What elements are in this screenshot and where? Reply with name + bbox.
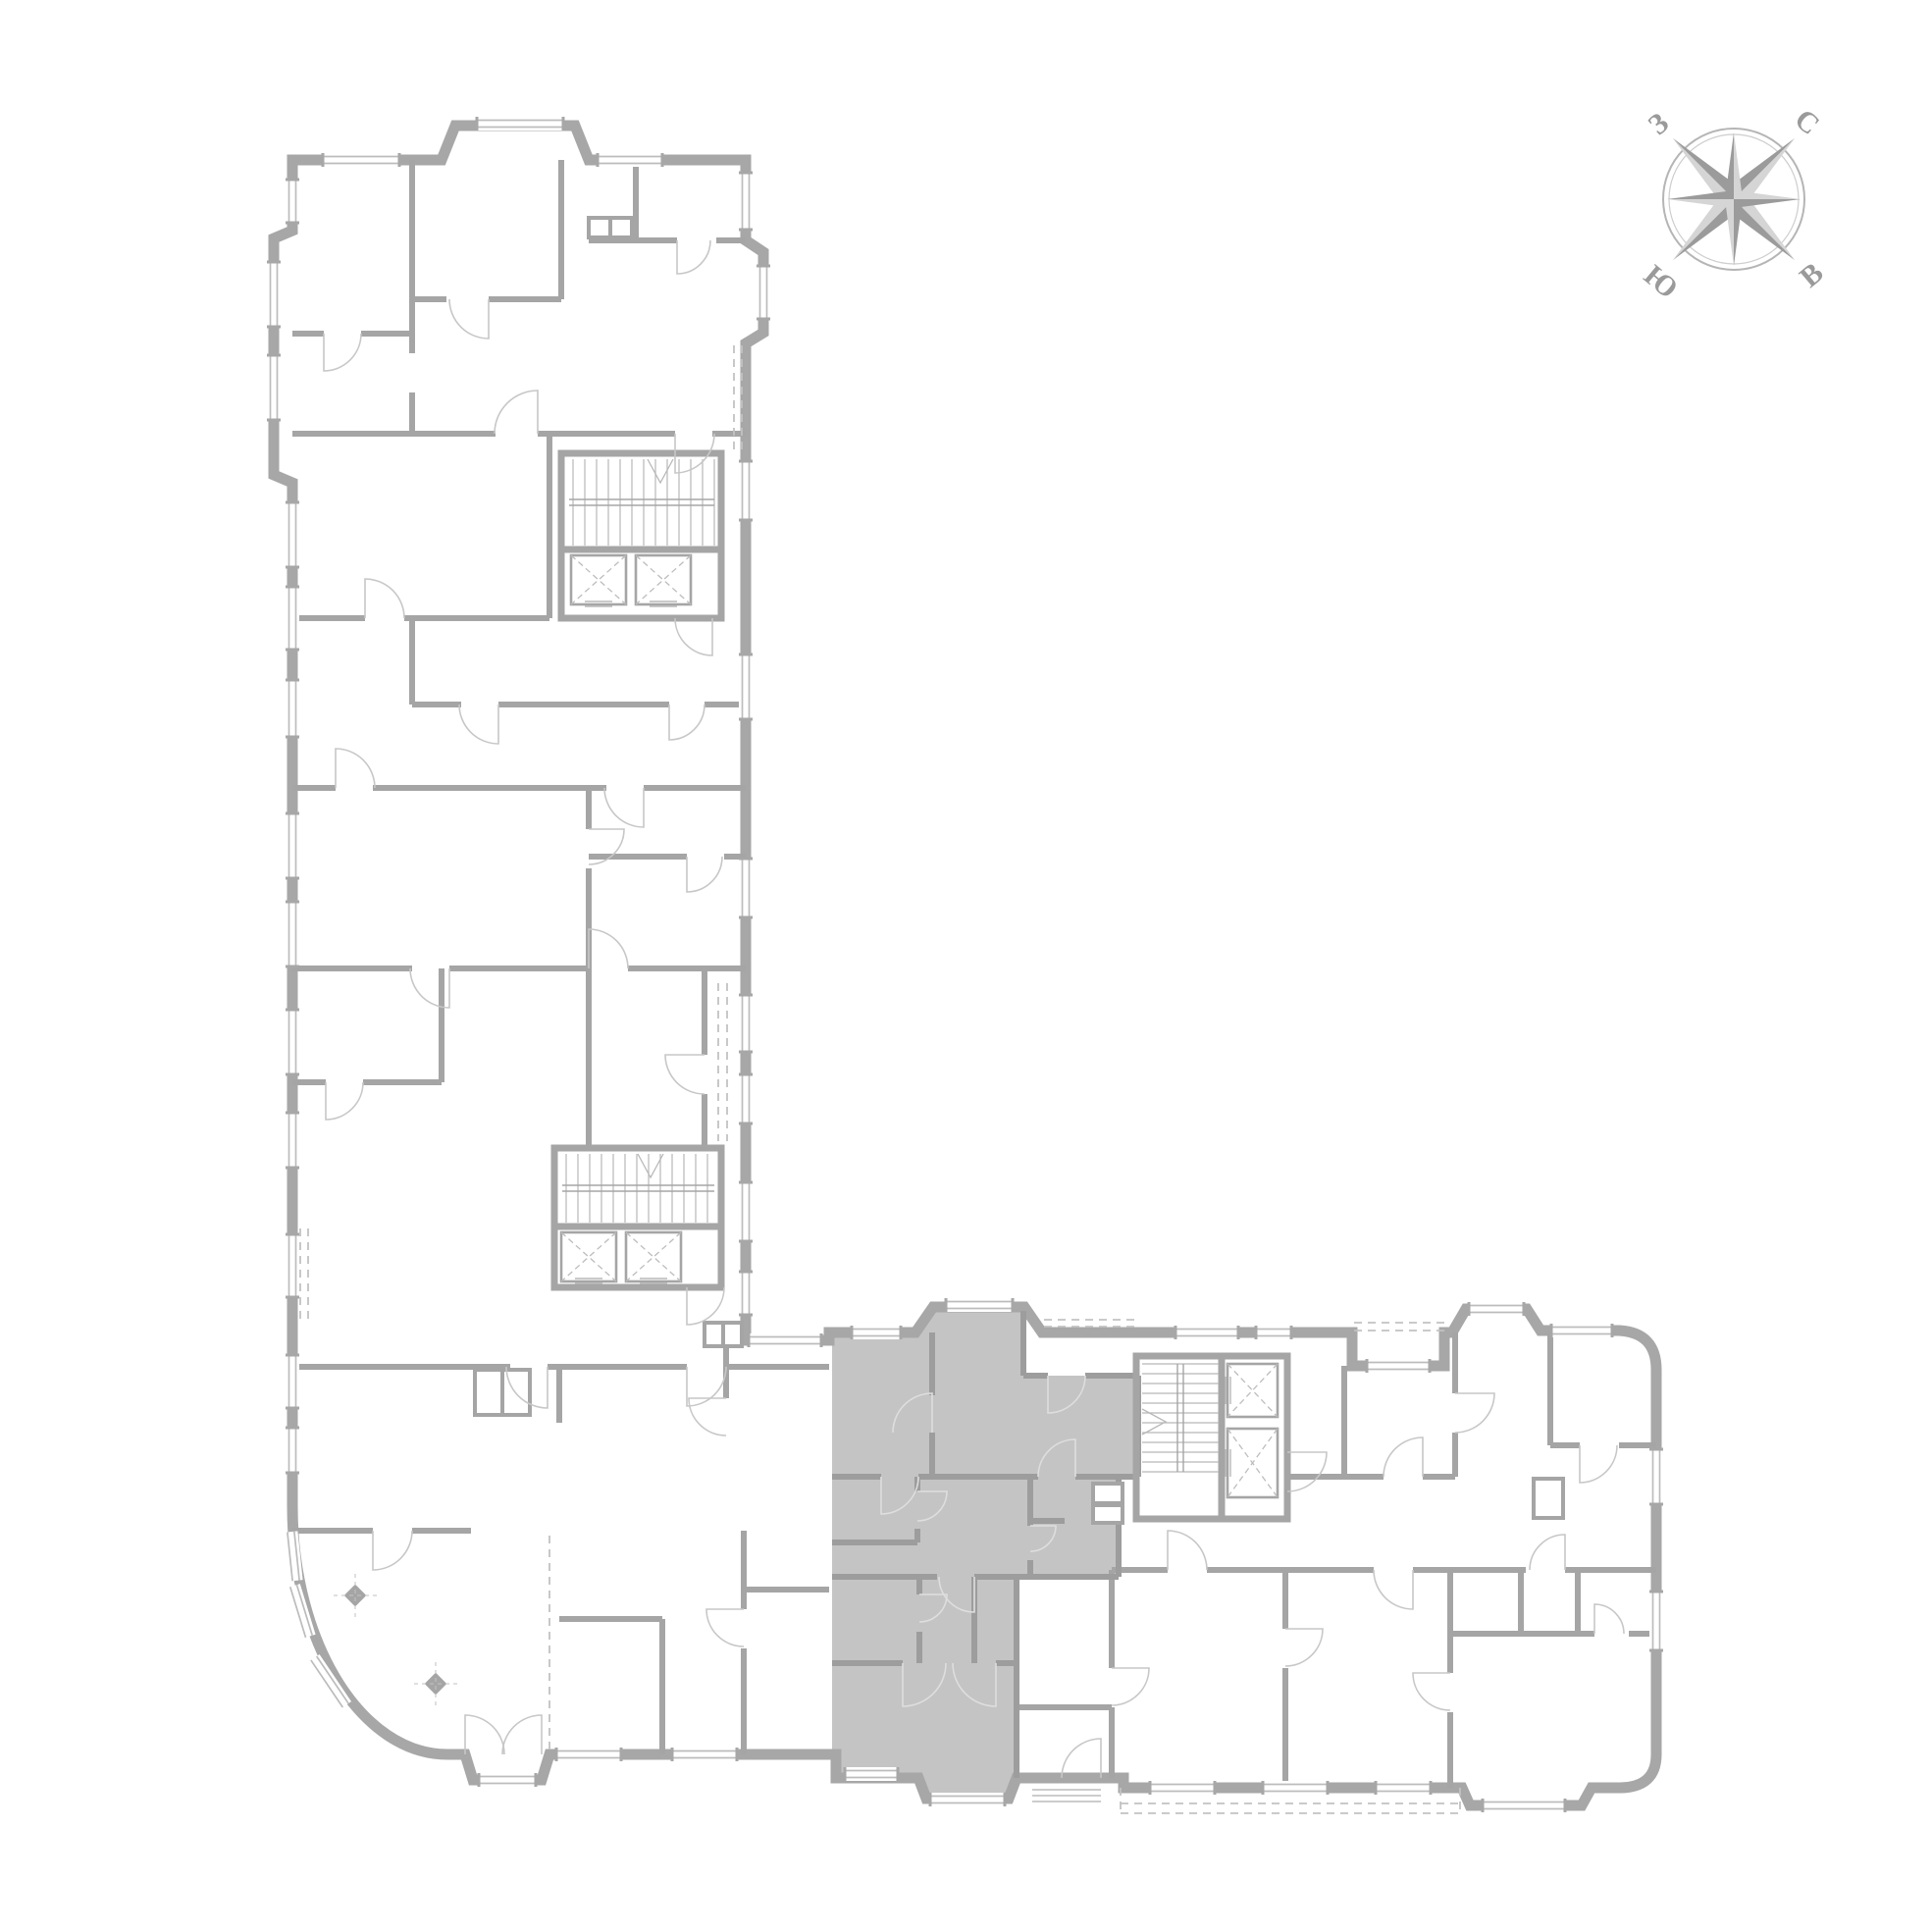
window-gap	[739, 1272, 753, 1315]
window-curved	[284, 1531, 302, 1581]
door-arc	[687, 1287, 724, 1325]
window	[286, 1428, 299, 1473]
window	[1263, 1781, 1328, 1795]
window-gap	[286, 813, 299, 878]
window-gap	[286, 1010, 299, 1074]
door-arc	[665, 1055, 705, 1094]
window	[757, 266, 770, 319]
window-gap	[286, 180, 299, 223]
window	[286, 502, 299, 567]
compass-label-east: В	[1794, 256, 1830, 293]
window	[267, 262, 281, 327]
window-gap	[852, 1326, 901, 1339]
window-gap	[845, 1767, 898, 1781]
window	[286, 587, 299, 650]
window	[739, 859, 753, 917]
window	[286, 813, 299, 878]
window	[323, 153, 399, 167]
window	[1483, 1799, 1565, 1812]
floor-plan: С В Ю З	[0, 0, 1932, 1932]
window-gap	[1367, 1359, 1430, 1373]
window-gap	[672, 1748, 737, 1761]
window	[267, 355, 281, 420]
elevator-icon	[561, 1232, 616, 1283]
window-gap	[1469, 1302, 1524, 1316]
window-gap	[1551, 1324, 1612, 1337]
door-arc	[675, 618, 712, 655]
window-gap	[739, 654, 753, 719]
compass-needle	[1667, 199, 1734, 208]
door-arc	[1285, 1629, 1323, 1666]
window	[739, 461, 753, 520]
window	[1175, 1326, 1238, 1339]
window	[286, 1010, 299, 1074]
window-gap	[267, 262, 281, 327]
window-gap	[286, 1113, 299, 1168]
window-gap	[1483, 1799, 1565, 1812]
compass-needle	[1667, 190, 1734, 199]
window	[749, 1333, 821, 1347]
window	[946, 1298, 1013, 1312]
window-gap	[286, 1355, 299, 1408]
window-gap	[477, 117, 563, 131]
door-arc	[1580, 1445, 1617, 1483]
window	[477, 117, 563, 131]
window-gap	[739, 1074, 753, 1123]
column-icon	[414, 1662, 457, 1705]
door-arc	[706, 1609, 744, 1646]
door-arc	[449, 299, 489, 339]
door-arc	[365, 579, 404, 618]
stairs-icon	[566, 1154, 707, 1223]
door-arc	[495, 391, 538, 434]
window-gap	[930, 1793, 1005, 1806]
window	[845, 1767, 898, 1781]
compass-label-west: З	[1643, 107, 1675, 142]
highlighted-unit-area[interactable]	[832, 1311, 1138, 1799]
closet	[1534, 1479, 1563, 1518]
vent-shaft	[705, 1323, 742, 1346]
elevator-icon	[571, 555, 626, 606]
window-gap	[284, 1531, 302, 1581]
window	[1150, 1781, 1215, 1795]
compass-label-south: Ю	[1638, 259, 1684, 305]
window-gap	[946, 1298, 1013, 1312]
window	[672, 1748, 737, 1761]
door-arc	[669, 705, 705, 740]
vent-shaft	[475, 1370, 530, 1415]
window-gap	[286, 902, 299, 966]
window	[739, 1272, 753, 1315]
window	[1376, 1781, 1431, 1795]
window	[739, 173, 753, 230]
vent-shaft	[1093, 1484, 1123, 1523]
window	[1649, 1449, 1663, 1504]
compass-needle	[1734, 190, 1801, 199]
window-gap	[556, 1748, 621, 1761]
vent-shaft	[589, 218, 632, 237]
window	[286, 902, 299, 966]
door-arc	[1413, 1673, 1450, 1710]
door-arc	[687, 857, 722, 892]
door-arc	[465, 1715, 504, 1754]
stair-elevator-core-lower	[1136, 1356, 1287, 1519]
window	[739, 1074, 753, 1123]
window	[1469, 1302, 1524, 1316]
door-arc	[459, 705, 498, 744]
stair-elevator-core-middle	[554, 1148, 721, 1287]
window-gap	[739, 461, 753, 520]
door-arc	[1287, 1452, 1327, 1491]
window-gap	[1256, 1326, 1291, 1339]
window	[852, 1326, 901, 1339]
window-gap	[739, 173, 753, 230]
highlighted-unit[interactable]	[832, 1311, 1138, 1799]
stairs-icon	[1142, 1364, 1219, 1472]
stair-elevator-core-upper	[561, 453, 721, 618]
window-gap	[749, 1333, 821, 1347]
compass-needle	[1734, 199, 1801, 208]
window	[286, 680, 299, 737]
window-gap	[323, 153, 399, 167]
window-gap	[286, 1428, 299, 1473]
door-arc	[1530, 1535, 1565, 1570]
door-arc	[336, 749, 375, 788]
door-arc	[502, 1715, 542, 1754]
stair-break-mark	[648, 459, 673, 483]
window	[739, 654, 753, 719]
elevator-icon	[626, 1232, 681, 1283]
entrance-steps	[1032, 1790, 1101, 1801]
window-gap	[1649, 1449, 1663, 1504]
stair-break-mark	[638, 1154, 663, 1177]
window-gap	[757, 266, 770, 319]
door-arc	[687, 1367, 726, 1406]
window	[930, 1793, 1005, 1806]
window-gap	[479, 1773, 536, 1787]
door-arc	[604, 788, 644, 827]
window	[479, 1773, 536, 1787]
column-icon	[334, 1574, 377, 1617]
window-gap	[286, 502, 299, 567]
window-gap	[1376, 1781, 1431, 1795]
window-gap	[1263, 1781, 1328, 1795]
door-arc	[324, 334, 361, 371]
window-gap	[286, 680, 299, 737]
window-gap	[598, 153, 662, 167]
window-gap	[1150, 1781, 1215, 1795]
window	[739, 995, 753, 1052]
door-arc	[677, 240, 710, 274]
floor-plan-canvas: С В Ю З	[0, 0, 1932, 1932]
window-gap	[267, 355, 281, 420]
window	[556, 1748, 621, 1761]
door-arc	[1062, 1739, 1101, 1778]
window	[1649, 1592, 1663, 1650]
elevator-icon	[1226, 1429, 1278, 1497]
elevator-icon	[1226, 1364, 1278, 1417]
window-gap	[286, 1234, 299, 1297]
window	[286, 180, 299, 223]
door-arc	[589, 929, 628, 968]
stairs-icon	[573, 459, 714, 546]
door-arc	[1594, 1604, 1624, 1634]
window	[1367, 1359, 1430, 1373]
window	[598, 153, 662, 167]
window	[286, 1355, 299, 1408]
window	[286, 1234, 299, 1297]
window	[286, 1113, 299, 1168]
window-gap	[286, 587, 299, 650]
elevator-icon	[636, 555, 691, 606]
window-gap	[739, 1182, 753, 1241]
door-arc	[1384, 1437, 1423, 1477]
window-gap	[739, 995, 753, 1052]
door-arc	[1455, 1393, 1494, 1433]
door-arc	[1112, 1668, 1149, 1705]
door-arc	[1168, 1531, 1207, 1570]
window-gap	[1175, 1326, 1238, 1339]
door-arc	[689, 1398, 726, 1436]
window	[739, 1182, 753, 1241]
window	[1551, 1324, 1612, 1337]
window	[1256, 1326, 1291, 1339]
compass-rose: С В Ю З	[1638, 103, 1829, 305]
door-arc	[1374, 1570, 1413, 1609]
window-gap	[1649, 1592, 1663, 1650]
door-arc	[326, 1082, 363, 1120]
window-gap	[739, 859, 753, 917]
door-arc	[373, 1531, 412, 1570]
compass-label-north: С	[1789, 103, 1826, 141]
